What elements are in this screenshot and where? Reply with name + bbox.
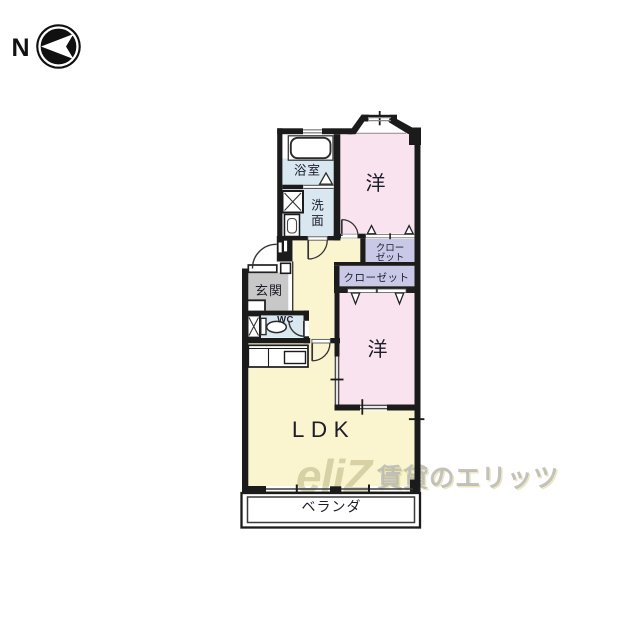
svg-text:N: N <box>11 34 29 62</box>
svg-text:洋: 洋 <box>368 338 388 361</box>
svg-text:賃貸のエリッツ: 賃貸のエリッツ <box>376 464 559 493</box>
svg-text:クローゼット: クローゼット <box>344 272 410 284</box>
svg-text:ゼット: ゼット <box>376 252 405 264</box>
svg-text:洗: 洗 <box>311 199 324 213</box>
svg-text:玄関: 玄関 <box>255 283 283 298</box>
svg-text:LDK: LDK <box>292 417 355 442</box>
svg-text:WC: WC <box>277 315 294 326</box>
svg-text:面: 面 <box>311 214 324 228</box>
svg-text:ベランダ: ベランダ <box>302 499 362 515</box>
svg-text:洋: 洋 <box>366 172 386 195</box>
svg-text:浴室: 浴室 <box>294 163 321 178</box>
